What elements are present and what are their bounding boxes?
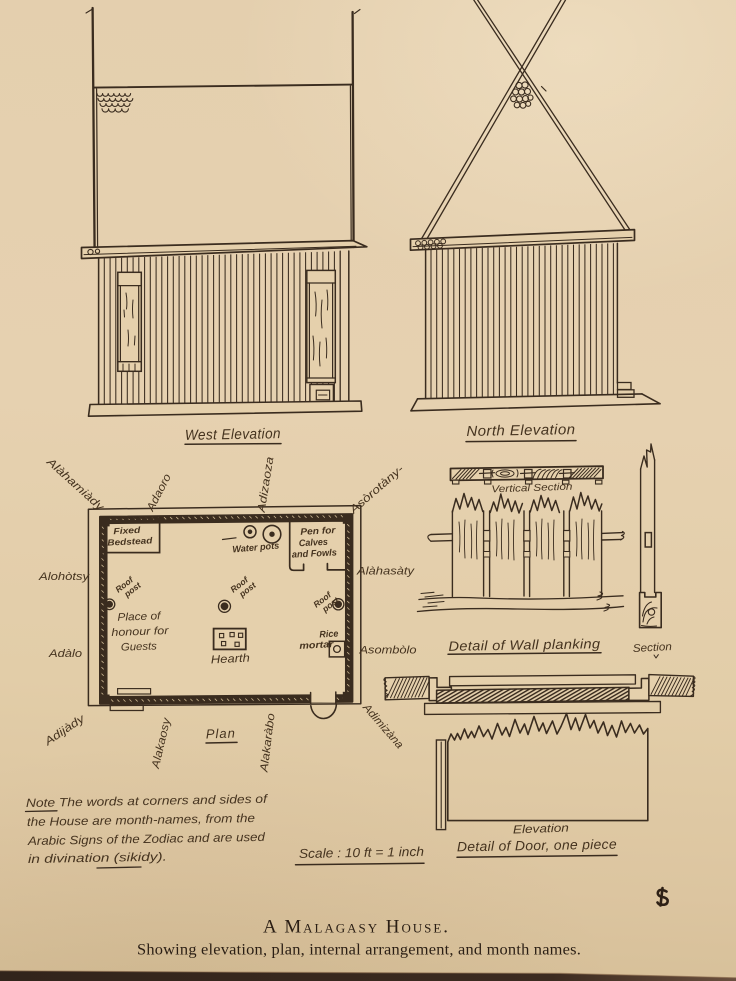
- svg-text:West Elevation: West Elevation: [185, 426, 281, 444]
- svg-text:A Malagasy House.: A Malagasy House.: [263, 917, 450, 938]
- svg-text:Plan: Plan: [206, 725, 237, 741]
- svg-text:Alakaràbo: Alakaràbo: [258, 713, 277, 774]
- svg-text:honour for: honour for: [111, 625, 169, 639]
- svg-text:Hearth: Hearth: [211, 652, 251, 666]
- svg-text:Alakaosy: Alakaosy: [150, 716, 174, 771]
- svg-text:Alàhamiàdy: Alàhamiàdy: [43, 455, 107, 514]
- svg-text:Asombòlo: Asombòlo: [358, 645, 416, 657]
- svg-text:Showing elevation, plan, inter: Showing elevation, plan, internal arrang…: [137, 942, 581, 959]
- svg-text:Adimizàna: Adimizàna: [360, 701, 406, 751]
- svg-text:Scale : 10 ft = 1 inch: Scale : 10 ft = 1 inch: [299, 844, 424, 861]
- svg-text:and Fowls: and Fowls: [292, 546, 338, 559]
- svg-text:Arabic Signs of the Zodiac and: Arabic Signs of the Zodiac and are used: [27, 830, 266, 848]
- svg-text:Asòrotàny-: Asòrotàny-: [347, 463, 407, 517]
- svg-text:Alohòtsy: Alohòtsy: [38, 571, 91, 583]
- svg-text:the House are month-names, fro: the House are month-names, from the: [27, 811, 256, 829]
- svg-text:North Elevation: North Elevation: [466, 422, 575, 440]
- svg-text:Fixed: Fixed: [113, 525, 141, 536]
- svg-text:in divination (sikidy).: in divination (sikidy).: [28, 850, 167, 866]
- svg-text:Place of: Place of: [117, 610, 161, 624]
- svg-text:Vertical Section: Vertical Section: [491, 482, 573, 496]
- svg-text:Adàlo: Adàlo: [48, 648, 82, 660]
- svg-text:Note The words at corners and: Note The words at corners and sides of: [26, 792, 269, 810]
- svg-text:Alàhasàty: Alàhasàty: [356, 566, 416, 578]
- svg-text:Section: Section: [633, 641, 673, 655]
- svg-text:Adijàdy: Adijàdy: [42, 712, 88, 749]
- svg-text:Pen for: Pen for: [300, 524, 337, 537]
- svg-text:Detail of Wall planking: Detail of Wall planking: [448, 636, 600, 654]
- svg-text:Detail of Door, one piece: Detail of Door, one piece: [457, 837, 617, 855]
- svg-text:Adizaoza: Adizaoza: [256, 456, 277, 514]
- svg-text:Guests: Guests: [121, 640, 158, 653]
- svg-text:Elevation: Elevation: [513, 823, 569, 837]
